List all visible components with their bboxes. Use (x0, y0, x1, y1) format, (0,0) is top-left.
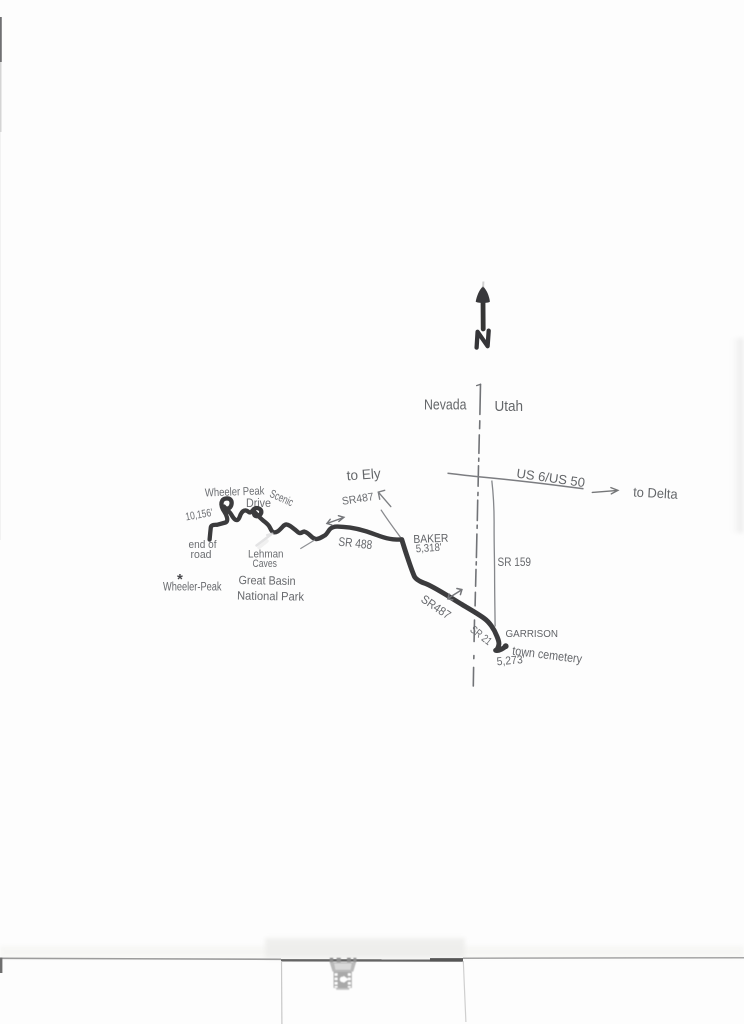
svg-text:Nevada: Nevada (424, 398, 467, 414)
svg-text:Caves: Caves (253, 558, 278, 570)
svg-text:National Park: National Park (237, 589, 305, 604)
svg-text:5,273': 5,273' (496, 654, 525, 668)
svg-text:to Ely: to Ely (346, 465, 381, 483)
svg-text:road: road (191, 549, 212, 561)
svg-text:Wheeler-Peak: Wheeler-Peak (163, 582, 222, 594)
svg-text:GARRISON: GARRISON (506, 628, 559, 640)
svg-text:SR 159: SR 159 (498, 555, 532, 569)
svg-text:5,318': 5,318' (415, 542, 442, 556)
svg-text:Great Basin: Great Basin (238, 573, 295, 588)
svg-text:to Delta: to Delta (633, 485, 679, 502)
svg-text:Utah: Utah (495, 399, 524, 415)
